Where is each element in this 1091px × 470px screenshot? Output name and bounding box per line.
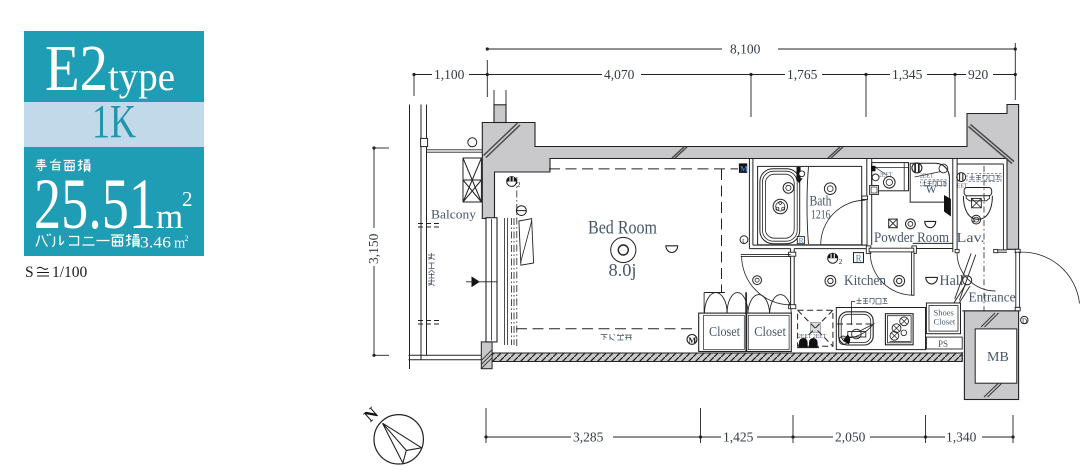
svg-text:2: 2 <box>185 234 189 243</box>
svg-text:1/100: 1/100 <box>52 264 88 281</box>
svg-text:Closet: Closet <box>754 325 786 340</box>
svg-text:Closet: Closet <box>934 317 956 327</box>
svg-text:Kitchen: Kitchen <box>844 273 887 289</box>
svg-text:2EET: 2EET <box>920 174 934 180</box>
svg-text:4,070: 4,070 <box>604 67 635 82</box>
svg-text:1,425: 1,425 <box>723 430 754 445</box>
svg-text:3,285: 3,285 <box>573 430 604 445</box>
svg-text:type: type <box>108 54 175 99</box>
svg-text:2: 2 <box>839 258 843 266</box>
svg-text:2: 2 <box>517 181 521 189</box>
svg-text:3.46: 3.46 <box>140 235 171 252</box>
svg-text:1,100: 1,100 <box>434 67 465 82</box>
svg-text:E2: E2 <box>45 32 108 105</box>
svg-text:Entrance: Entrance <box>969 290 1016 305</box>
svg-text:MB: MB <box>987 350 1009 365</box>
svg-text:M: M <box>740 164 748 174</box>
svg-text:1216: 1216 <box>811 207 831 222</box>
svg-text:1,340: 1,340 <box>946 430 977 445</box>
svg-text:25.51: 25.51 <box>34 164 156 244</box>
svg-text:920: 920 <box>968 67 989 82</box>
svg-text:M: M <box>688 335 696 345</box>
svg-text:PS: PS <box>938 339 948 349</box>
svg-text:2EET: 2EET <box>879 173 893 179</box>
svg-text:Bed Room: Bed Room <box>588 218 657 239</box>
svg-text:8,100: 8,100 <box>730 42 761 57</box>
svg-text:2: 2 <box>182 187 193 211</box>
svg-text:1,765: 1,765 <box>787 67 818 82</box>
svg-text:D: D <box>1022 317 1027 325</box>
svg-text:R: R <box>799 236 804 245</box>
svg-text:2,050: 2,050 <box>835 430 866 445</box>
svg-text:W: W <box>926 184 937 196</box>
svg-text:3,150: 3,150 <box>366 233 381 264</box>
svg-text:N: N <box>360 403 382 426</box>
svg-text:1,345: 1,345 <box>892 67 923 82</box>
svg-text:Lav.: Lav. <box>957 231 985 246</box>
svg-text:R: R <box>856 253 862 263</box>
svg-text:S: S <box>25 264 34 281</box>
svg-text:Hall: Hall <box>940 273 964 289</box>
svg-text:8.0j: 8.0j <box>609 260 637 280</box>
svg-text:1K: 1K <box>92 96 136 149</box>
svg-text:m: m <box>156 197 183 236</box>
svg-text:Closet: Closet <box>709 325 740 340</box>
svg-text:Powder Room: Powder Room <box>874 230 950 246</box>
svg-text:Balcony: Balcony <box>431 207 477 222</box>
svg-text:EET: EET <box>957 184 968 190</box>
